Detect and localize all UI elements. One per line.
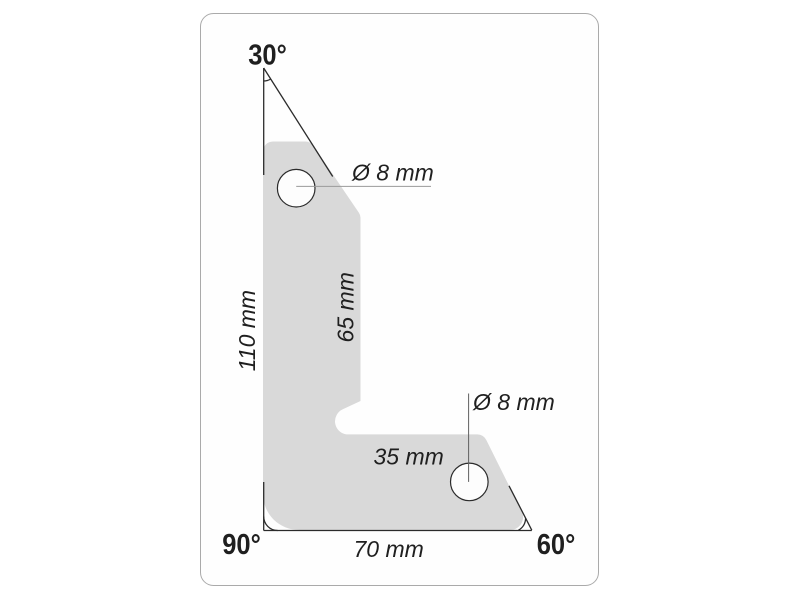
svg-text:65 mm: 65 mm (332, 272, 358, 342)
svg-text:35 mm: 35 mm (374, 443, 444, 469)
svg-text:70 mm: 70 mm (354, 536, 424, 562)
svg-text:60°: 60° (537, 527, 576, 560)
svg-text:90°: 90° (222, 527, 261, 560)
svg-text:110 mm: 110 mm (234, 290, 260, 371)
svg-text:Ø 8 mm: Ø 8 mm (472, 389, 555, 415)
svg-text:Ø 8 mm: Ø 8 mm (351, 160, 434, 186)
svg-text:30°: 30° (248, 38, 287, 71)
